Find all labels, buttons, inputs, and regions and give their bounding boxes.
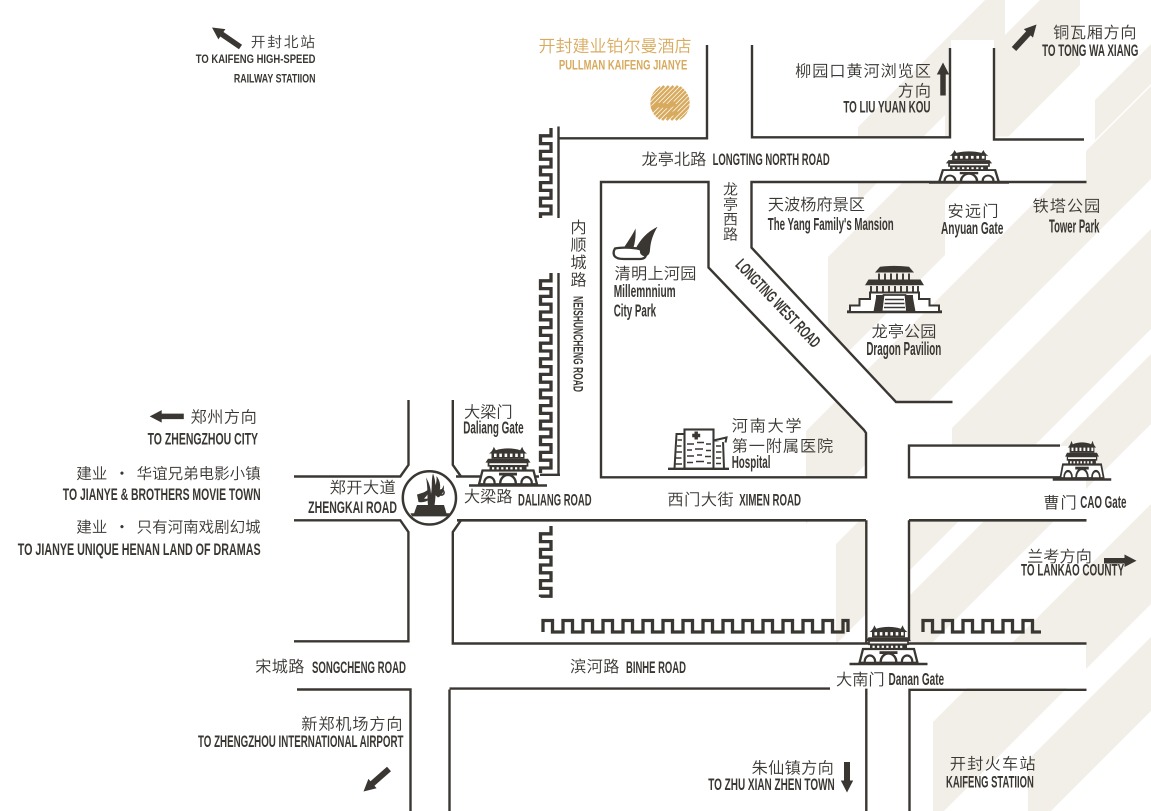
svg-text:SONGCHENG ROAD: SONGCHENG ROAD bbox=[312, 658, 406, 676]
svg-text:TO ZHENGZHOU CITY: TO ZHENGZHOU CITY bbox=[148, 429, 258, 448]
svg-text:TO ZHENGZHOU INTERNATIONAL AIR: TO ZHENGZHOU INTERNATIONAL AIRPORT bbox=[198, 732, 404, 750]
svg-text:DALIANG ROAD: DALIANG ROAD bbox=[518, 491, 592, 509]
svg-text:TO LANKAO COUNTY: TO LANKAO COUNTY bbox=[1021, 561, 1124, 579]
svg-text:Danan Gate: Danan Gate bbox=[889, 670, 945, 690]
svg-text:TO LIU YUAN KOU: TO LIU YUAN KOU bbox=[843, 98, 930, 116]
svg-text:NEISHUNCHENG ROAD: NEISHUNCHENG ROAD bbox=[570, 296, 585, 392]
svg-text:Anyuan Gate: Anyuan Gate bbox=[941, 219, 1003, 239]
svg-text:PULLMAN KAIFENG JIANYE: PULLMAN KAIFENG JIANYE bbox=[559, 56, 687, 72]
svg-text:TO JIANYE UNIQUE HENAN LAND OF: TO JIANYE UNIQUE HENAN LAND OF DRAMAS bbox=[18, 540, 261, 559]
svg-text:CAO Gate: CAO Gate bbox=[1080, 493, 1126, 513]
svg-text:City Park: City Park bbox=[614, 301, 657, 321]
svg-text:TO JIANYE & BROTHERS MOVIE TOW: TO JIANYE & BROTHERS MOVIE TOWN bbox=[63, 486, 261, 504]
svg-text:ZHENGKAI ROAD: ZHENGKAI ROAD bbox=[308, 498, 397, 517]
svg-text:Hospital: Hospital bbox=[732, 453, 771, 473]
svg-text:TO ZHU XIAN ZHEN TOWN: TO ZHU XIAN ZHEN TOWN bbox=[708, 775, 834, 793]
svg-text:LONGTING NORTH ROAD: LONGTING NORTH ROAD bbox=[713, 150, 830, 168]
svg-text:Millemnnium: Millemnnium bbox=[614, 282, 676, 302]
svg-text:TO KAIFENG HIGH-SPEED: TO KAIFENG HIGH-SPEED bbox=[196, 53, 316, 66]
svg-text:BINHE ROAD: BINHE ROAD bbox=[626, 658, 686, 676]
svg-text:KAIFENG STATIION: KAIFENG STATIION bbox=[946, 773, 1034, 791]
svg-text:The Yang Family's Mansion: The Yang Family's Mansion bbox=[768, 215, 894, 235]
svg-text:Daliang Gate: Daliang Gate bbox=[463, 419, 523, 439]
svg-text:RAILWAY STATIION: RAILWAY STATIION bbox=[234, 72, 316, 86]
svg-text:Dragon Pavilion: Dragon Pavilion bbox=[866, 340, 941, 360]
svg-text:XIMEN ROAD: XIMEN ROAD bbox=[739, 491, 801, 509]
svg-text:Tower Park: Tower Park bbox=[1049, 217, 1100, 237]
svg-text:TO TONG WA XIANG: TO TONG WA XIANG bbox=[1042, 41, 1138, 59]
